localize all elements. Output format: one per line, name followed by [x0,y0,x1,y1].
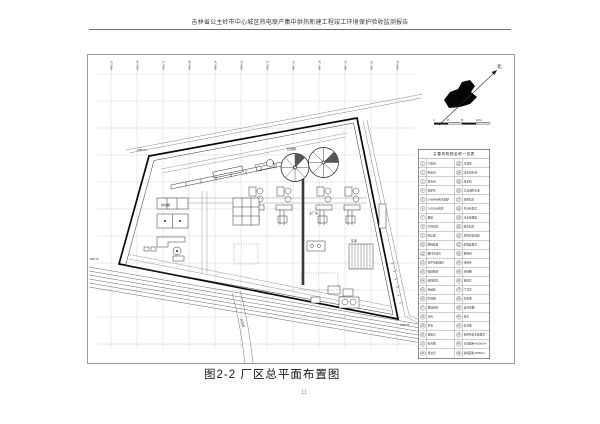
legend-row: 3煤仓间25净水站 [419,177,490,186]
annotation-label: 综合楼 [161,202,170,207]
legend-item-number: 29 [456,215,461,220]
annotation-label: 主厂房 [309,210,318,215]
legend-item-number: 27 [456,197,461,202]
legend-item-number: 30 [456,224,461,229]
grid-coordinate-label: 4846.76 [266,60,270,70]
header-rule [89,29,511,30]
legend-item-name: 锅炉补给水处理室 [463,331,490,340]
legend-row: 4锅炉房26工业消防水池 [419,186,490,195]
plan-annotations: 1885.60 1884.20 1880.55 贮煤场 主厂房 灰库 综合楼 [90,146,410,327]
legend-row: 7烟囱29污水处理站 [419,213,490,222]
legend-item-name: 净水站 [463,177,490,186]
grid-coordinate-label: 4845.98 [188,60,192,70]
legend-item-name: 检修间 [463,249,490,258]
legend-item-number: 43 [456,341,461,346]
grid-coordinate-label: 4846.24 [214,60,218,70]
legend-row: 14碎煤机室36地磅房 [419,276,490,285]
legend-item-number: 13 [420,269,425,274]
legend-item-name: 配电装置室 [463,240,490,249]
legend-table: 主要构筑物名称一览表 1汽机间23冷却塔2除氧间24凉水塔水池3煤仓间25净水站… [418,149,490,359]
legend-item-name: 食堂 [463,313,490,322]
legend-item-name: 生活水泵房 [463,204,490,213]
buildings [144,198,386,308]
legend-item-name: 除尘器 [427,231,455,240]
legend-row: 8引风机房30雨水泵房 [419,222,490,231]
scale-tick-label: 25 [447,120,450,122]
legend-item-number: 33 [456,251,461,256]
grid-coordinate-label: 4845.20 [110,60,114,70]
legend-title: 主要构筑物名称一览表 [419,150,490,159]
legend-item-name: 污水处理站 [463,213,490,222]
legend-item-number: 22 [420,351,425,356]
legend-rows: 1汽机间23冷却塔2除氧间24凉水塔水池3煤仓间25净水站4锅炉房26工业消防水… [419,159,490,358]
legend-row: 22传达室44建筑面积≈5000m² [419,349,490,358]
legend-item-name: 传达室 [427,349,455,358]
legend-item-name: 煤仓间 [427,177,455,186]
legend-row: 1汽机间23冷却塔 [419,159,490,168]
legend-item-number: 14 [420,278,425,283]
legend-item-number: 16 [420,296,425,301]
north-arrow-icon: 北 [439,63,502,125]
legend-row: 2除氧间24凉水塔水池 [419,168,490,177]
legend-item-number: 42 [456,332,461,337]
scale-tick-label: 50 [461,120,464,122]
legend-row: 15转运站37门卫室 [419,285,490,294]
figure-caption: 图2-2 厂区总平面布置图 [204,366,340,382]
road-name-label: 兴华街 [239,318,247,328]
grid-coordinate-label: 4848.06 [396,60,400,70]
legend-item-name: 烟囱 [427,213,455,222]
legend-item-number: 41 [456,323,461,328]
legend-row: 13输煤栈桥35材料棚 [419,267,490,276]
legend-item-name: 地磅房 [463,276,490,285]
legend-item-name: 推煤机库 [427,303,455,312]
legend-item-name: 雨水泵房 [463,222,490,231]
grid-coordinate-label: 4847.28 [318,60,322,70]
legend-row: 52×58MW热水锅炉27消防泵房 [419,195,490,204]
legend-item-number: 15 [420,287,425,292]
legend-item-name: 总降压变电站 [463,231,490,240]
legend-item-number: 44 [456,351,461,356]
railway-lines [89,267,469,351]
annotation-label: 灰库 [351,238,357,243]
scale-tick-label: 100m [476,120,482,122]
legend-item-number: 23 [456,161,461,166]
grid-coordinate-label: 4845.72 [162,60,166,70]
grid-coordinate-label: 4847.80 [370,60,374,70]
legend-item-number: 24 [456,170,461,175]
legend-item-name: 脱硫装置 [427,240,455,249]
legend-row: 11循环水泵房33检修间 [419,249,490,258]
legend-item-number: 36 [456,278,461,283]
legend-item-number: 21 [420,341,425,346]
legend-item-number: 25 [456,179,461,184]
legend-item-name: 凉水塔水池 [463,168,490,177]
legend-item-number: 7 [420,215,425,220]
legend-row: 10脱硫装置32配电装置室 [419,240,490,249]
legend-item-name: 贮煤场 [427,294,455,303]
legend-item-name: 停车场 [463,294,490,303]
annotation-label: 1880.55 [400,323,410,327]
legend-item-name: 碎煤机室 [427,276,455,285]
legend-item-number: 40 [456,314,461,319]
legend-item-number: 6 [420,206,425,211]
grid-coordinate-label: 4847.02 [292,60,296,70]
legend-item-number: 3 [420,179,425,184]
grid-coordinate-label: 4845.46 [136,60,140,70]
legend-row: 62×220t/h锅炉28生活水泵房 [419,204,490,213]
legend-row: 17推煤机库39自行车棚 [419,303,490,312]
page-number: 11 [301,390,307,396]
report-header-title: 吉林省公主岭市中心城区热电联产集中供热新建工程竣工环境保护验收监测报告 [0,17,600,26]
legend-item-name: 材料库 [463,258,490,267]
annotation-label: 1885.60 [137,148,147,152]
circular-coal-storage [267,148,339,182]
legend-item-number: 17 [420,305,425,310]
legend-item-number: 34 [456,260,461,265]
legend-item-number: 37 [456,287,461,292]
legend-item-name: 灰库 [427,313,455,322]
coal-conveyor-line [302,173,305,285]
scale-tick-label: 0 [433,120,435,122]
legend-item-number: 10 [420,242,425,247]
annotation-label: 贮煤场 [287,146,296,151]
legend-item-name: 除氧间 [427,168,455,177]
legend-item-number: 31 [456,233,461,238]
legend-item-number: 9 [420,233,425,238]
legend-item-number: 26 [456,188,461,193]
grid-coordinate-labels: 4845.20 4845.46 4845.72 4845.98 4846.24 … [110,60,400,70]
site-plan-frame: 4845.20 4845.46 4845.72 4845.98 4846.24 … [87,54,515,364]
legend-item-number: 12 [420,260,425,265]
legend-item-number: 38 [456,296,461,301]
legend-item-name: 循环水泵房 [427,249,455,258]
legend-item-name: 综合楼 [427,340,455,349]
legend-item-number: 39 [456,305,461,310]
grid-coordinate-label: 4847.54 [344,60,348,70]
legend-item-number: 19 [420,323,425,328]
legend-item-number: 5 [420,197,425,202]
legend-row: 9除尘器31总降压变电站 [419,231,490,240]
legend-item-number: 20 [420,332,425,337]
legend-item-name: 2×58MW热水锅炉 [427,195,455,204]
legend-item-number: 4 [420,188,425,193]
legend-item-number: 32 [456,242,461,247]
legend-item-name: 建筑面积≈5000m² [463,349,490,358]
legend-item-number: 2 [420,170,425,175]
legend-item-number: 11 [420,251,425,256]
legend-item-name: 材料棚 [463,267,490,276]
legend-item-name: 冷却塔 [463,159,490,168]
legend-item-name: 汽机间 [427,159,455,168]
legend-row: 19渣仓41宿舍楼 [419,322,490,331]
legend-item-number: 35 [456,269,461,274]
scale-bar: 0 25 50 100m [433,120,490,125]
legend-item-number: 8 [420,224,425,229]
legend-item-name: 自行车棚 [463,303,490,312]
legend-row: 18灰库40食堂 [419,313,490,322]
legend-item-name: 2×220t/h锅炉 [427,204,455,213]
legend-item-name: 渣仓 [427,322,455,331]
legend-item-number: 28 [456,206,461,211]
legend-item-name: 输煤栈桥 [427,267,455,276]
legend-item-number: 18 [420,314,425,319]
legend-row: 12化学水处理间34材料库 [419,258,490,267]
legend-item-name: 工业消防水池 [463,186,490,195]
legend-item-number: 1 [420,161,425,166]
grid-coordinate-label: 4846.50 [240,60,244,70]
legend-item-name: 化学水处理间 [427,258,455,267]
legend-row: 16贮煤场38停车场 [419,294,490,303]
legend-item-name: 消防泵房 [463,195,490,204]
legend-item-name: 门卫室 [463,285,490,294]
annotation-label: 1884.20 [90,257,100,261]
legend-item-name: 宿舍楼 [463,322,490,331]
north-label: 北 [497,63,502,70]
legend-item-name: 转运站 [427,285,455,294]
legend-item-name: 引风机房 [427,222,455,231]
legend-item-name: 油泵房 [427,331,455,340]
document-page: 吉林省公主岭市中心城区热电联产集中供热新建工程竣工环境保护验收监测报告 [0,0,600,424]
legend-row: 21综合楼43占地面积=50000m² [419,340,490,349]
legend-item-name: 锅炉房 [427,186,455,195]
legend-row: 20油泵房42锅炉补给水处理室 [419,331,490,340]
legend-item-name: 占地面积=50000m² [463,340,490,349]
